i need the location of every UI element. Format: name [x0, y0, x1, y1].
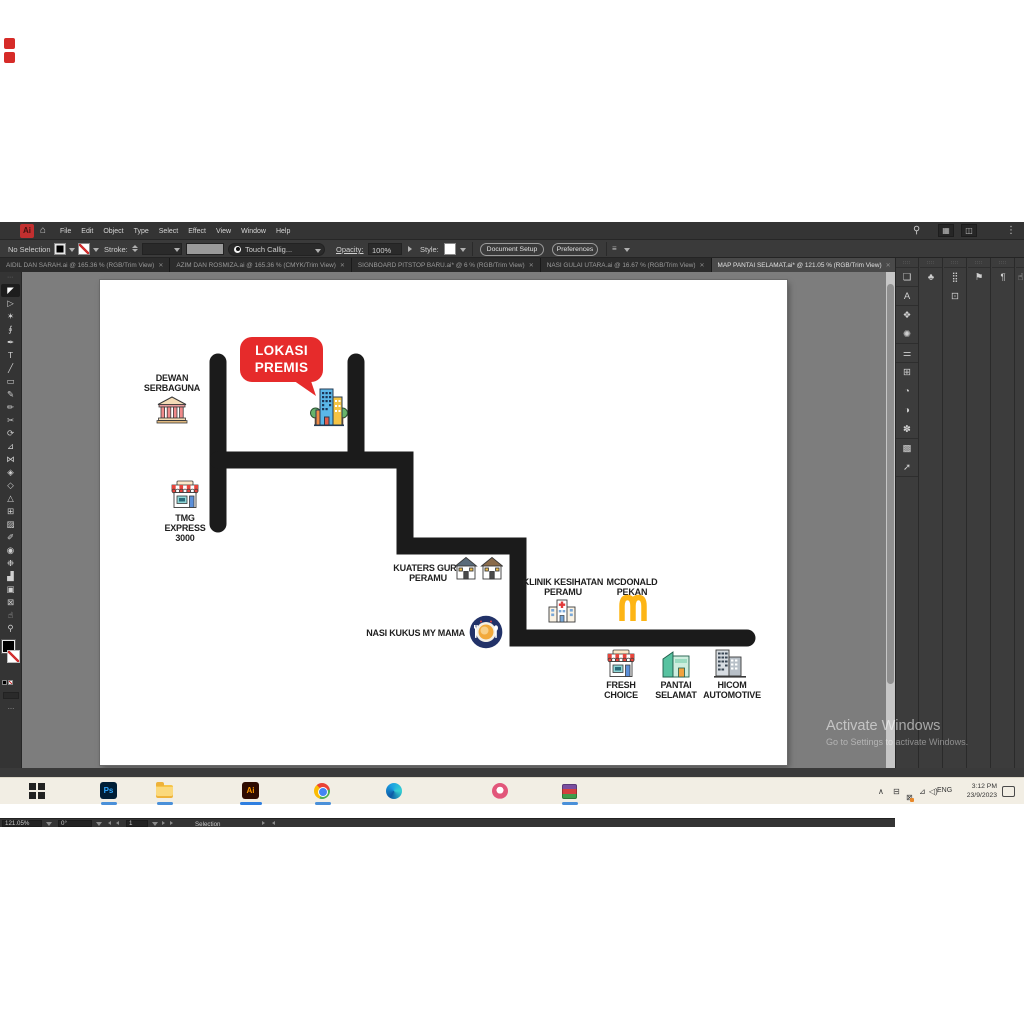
close-tab-icon[interactable]: ✕ — [340, 262, 345, 269]
magic-wand-tool[interactable]: ✶ — [0, 310, 21, 323]
color-mode-icons — [2, 680, 20, 688]
layers-panel-icon[interactable]: ❖ — [896, 306, 918, 325]
type-tool[interactable]: T — [0, 349, 21, 362]
panel-grip[interactable] — [1016, 258, 1024, 268]
illustrator-logo-icon[interactable]: Ai — [20, 224, 34, 238]
taskbar-winrar[interactable] — [562, 782, 580, 800]
photoshop-icon: Ps — [100, 782, 117, 799]
symbols-panel-icon[interactable]: ♣ — [920, 268, 942, 287]
gradient-panel-icon[interactable]: ▩ — [896, 439, 918, 458]
pen-tool[interactable]: ✒ — [0, 336, 21, 349]
brush-definition-dropdown[interactable]: Touch Callig... — [228, 243, 325, 256]
dock-column-2: ∷∷ ♣ — [920, 258, 943, 768]
rotation-dropdown-icon[interactable] — [96, 822, 102, 826]
artboard-tool[interactable]: ▣ — [0, 583, 21, 596]
running-indicator — [157, 802, 173, 805]
windows-taskbar: Ps Ai ∧ ⊟ ⊠ ⊿ ◁) ENG 3:12 PM 23/9/2023 — [0, 777, 1024, 804]
start-button[interactable] — [28, 782, 46, 800]
transform-panel-icon[interactable]: ⣿ — [944, 268, 966, 287]
eyedropper-tool[interactable]: ✐ — [0, 531, 21, 544]
running-indicator — [315, 802, 331, 805]
first-artboard-icon[interactable] — [108, 821, 111, 825]
transparency-panel-icon[interactable]: ◑ — [896, 401, 918, 420]
zoom-dropdown-icon[interactable] — [46, 822, 52, 826]
label-hicom-automotive[interactable]: HICOM AUTOMOTIVE — [700, 680, 764, 700]
label-nasi-kukus[interactable]: NASI KUKUS MY MAMA — [323, 628, 465, 638]
label-dewan-serbaguna[interactable]: DEWAN SERBAGUNA — [132, 373, 212, 393]
artboard-dropdown-icon[interactable] — [152, 822, 158, 826]
status-bar: 121.05% 0° 1 Selection — [0, 818, 895, 827]
stroke-weight-stepper[interactable] — [132, 244, 139, 253]
tab-azim-dan-rosmiza[interactable]: AZIM DAN ROSMIZA.ai @ 165.36 % (CMYK/Tri… — [170, 258, 352, 272]
workspace: ⋯ ◤ ▷ ✶ ∮ ✒ T ╱ ▭ ✎ ✏ ✂ ⟳ ⊿ ⋈ ◈ ◇ △ ⊞ ▨ — [0, 272, 1024, 768]
menu-list: File Edit Object Type Select Effect View… — [58, 222, 292, 240]
tab-title: AZIM DAN ROSMIZA.ai @ 165.36 % (CMYK/Tri… — [176, 262, 336, 269]
dewan-serbaguna-icon[interactable] — [156, 396, 188, 424]
paintbrush-tool[interactable]: ✎ — [0, 388, 21, 401]
gradient-tool[interactable]: ▨ — [0, 518, 21, 531]
hidden-icons-chevron[interactable]: ∧ — [878, 787, 884, 796]
screenshot-page: Ai ⌂ File Edit Object Type Select Effect… — [0, 0, 1024, 1024]
taskbar-photoshop[interactable]: Ps — [100, 782, 118, 800]
time: 3:12 PM — [953, 782, 997, 791]
close-tab-icon[interactable]: ✕ — [529, 262, 534, 269]
pathfinder-panel-icon[interactable]: ⊡ — [944, 287, 966, 306]
hand-tool[interactable]: ☝ — [0, 609, 21, 622]
network-icon[interactable]: ⊿ — [919, 787, 926, 796]
klinik-kesihatan-icon[interactable] — [548, 598, 576, 623]
file-explorer-icon — [156, 785, 173, 798]
drawing-mode-button[interactable] — [3, 692, 19, 699]
label-pantai-selamat[interactable]: PANTAI SELAMAT — [646, 680, 706, 700]
paragraph-panel-icon[interactable]: ¶ — [992, 268, 1014, 287]
hicom-automotive-icon[interactable] — [713, 647, 747, 679]
menu-select[interactable]: Select — [157, 228, 180, 235]
status-collapse-icon[interactable] — [272, 821, 275, 825]
road-staircase — [218, 460, 747, 638]
tab-title: NASI GULAI UTARA.ai @ 16.67 % (RGB/Trim … — [547, 262, 696, 269]
quick-actions-panel-icon[interactable]: ☝ — [1016, 268, 1024, 287]
document-tab-bar: AIDIL DAN SARAH.ai @ 165.36 % (RGB/Trim … — [0, 258, 897, 272]
taskbar-illustrator[interactable]: Ai — [242, 782, 260, 800]
activate-windows-watermark: Activate Windows Go to Settings to activ… — [826, 718, 1016, 747]
watermark-subtitle: Go to Settings to activate Windows. — [826, 737, 1016, 747]
stroke-label: Stroke: — [104, 245, 128, 254]
arrange-documents-icon[interactable]: ◫ — [961, 224, 977, 237]
opacity-link[interactable]: Opacity: — [336, 245, 364, 254]
free-transform-tool[interactable]: ◈ — [0, 466, 21, 479]
panel-grip[interactable]: ∷∷ — [992, 258, 1014, 268]
panel-grip[interactable]: ∷∷ — [920, 258, 942, 268]
color-icon[interactable] — [2, 680, 7, 685]
lokasi-premis-callout[interactable]: LOKASI PREMIS — [240, 337, 323, 382]
panel-grip[interactable]: ∷∷ — [944, 258, 966, 268]
pantai-selamat-icon[interactable] — [661, 649, 691, 679]
tab-title: SIGNBOARD PITSTOP BARU.ai* @ 6 % (RGB/Tr… — [358, 262, 525, 269]
brush-name: Touch Callig... — [245, 245, 292, 254]
menu-edit[interactable]: Edit — [79, 228, 95, 235]
next-artboard-icon[interactable] — [162, 821, 165, 825]
artboard[interactable]: LOKASI PREMIS — [100, 280, 787, 765]
zoom-level-field[interactable]: 121.05% — [2, 820, 42, 827]
label-tmg-express[interactable]: TMG EXPRESS 3000 — [145, 513, 225, 543]
kuaters-guru-icon[interactable] — [455, 556, 503, 582]
dock-column-4: ∷∷ ⚑ — [968, 258, 991, 768]
column-graph-tool[interactable]: ▟ — [0, 570, 21, 583]
taskbar-design-app[interactable] — [492, 782, 510, 800]
illustrator-window: Ai ⌂ File Edit Object Type Select Effect… — [0, 222, 1024, 777]
fill-color-swatch[interactable] — [54, 243, 66, 255]
selection-tool[interactable]: ◤ — [1, 284, 20, 297]
close-tab-icon[interactable]: ✕ — [700, 262, 705, 269]
rotate-tool[interactable]: ⟳ — [0, 427, 21, 440]
properties-panel-icon[interactable]: ⚌ — [896, 344, 918, 363]
tray-app-icon[interactable]: ⊟ — [893, 787, 900, 796]
pencil-tool[interactable]: ✏ — [0, 401, 21, 414]
blend-tool[interactable]: ◉ — [0, 544, 21, 557]
canvas-pasteboard[interactable]: LOKASI PREMIS — [22, 272, 886, 768]
color-panel-icon[interactable]: ✺ — [896, 325, 918, 344]
dock-column-3: ∷∷ ⣿ ⊡ — [944, 258, 967, 768]
menu-type[interactable]: Type — [132, 228, 151, 235]
style-label: Style: — [420, 245, 439, 254]
stroke-color-swatch[interactable] — [78, 243, 90, 255]
tab-title: MAP PANTAI SELAMAT.ai* @ 121.05 % (RGB/T… — [718, 262, 882, 269]
artifact-red-mark — [4, 38, 15, 49]
workspace-switcher-icon[interactable]: ▦ — [938, 224, 954, 237]
export-panel-icon[interactable]: ➚ — [896, 458, 918, 477]
direct-selection-tool[interactable]: ▷ — [0, 297, 21, 310]
menu-view[interactable]: View — [214, 228, 233, 235]
selection-status-label: No Selection — [8, 245, 51, 254]
align-dropdown-icon[interactable] — [624, 248, 630, 252]
brush-preview-icon — [234, 246, 241, 253]
vertical-scrollbar[interactable] — [886, 272, 895, 768]
taskbar-edge[interactable] — [386, 782, 404, 800]
line-segment-tool[interactable]: ╱ — [0, 362, 21, 375]
artboard-number-field[interactable]: 1 — [126, 820, 148, 827]
perspective-grid-tool[interactable]: △ — [0, 492, 21, 505]
menu-bar: Ai ⌂ File Edit Object Type Select Effect… — [0, 222, 1024, 240]
tmg-express-icon[interactable] — [170, 480, 200, 510]
close-tab-icon[interactable]: ✕ — [158, 262, 163, 269]
dock-column-1: ∷∷ ❏ A ❖ ✺ ⚌ ⊞ ◔ ◑ ✽ ▩ ➚ — [896, 258, 919, 768]
style-swatch[interactable] — [444, 243, 456, 255]
shape-builder-tool[interactable]: ◇ — [0, 479, 21, 492]
windows-logo-icon — [28, 782, 46, 800]
last-artboard-icon[interactable] — [170, 821, 173, 825]
menu-object[interactable]: Object — [101, 228, 125, 235]
chrome-icon — [314, 783, 330, 799]
tab-nasi-gulai-utara[interactable]: NASI GULAI UTARA.ai @ 16.67 % (RGB/Trim … — [541, 258, 712, 272]
tab-title: AIDIL DAN SARAH.ai @ 165.36 % (RGB/Trim … — [6, 262, 154, 269]
pattern-panel-icon[interactable]: ✽ — [896, 420, 918, 439]
slice-tool[interactable]: ⊠ — [0, 596, 21, 609]
callout-line1: LOKASI — [240, 342, 323, 359]
nasi-kukus-icon[interactable] — [469, 615, 503, 649]
opacity-expand-icon[interactable] — [408, 246, 412, 252]
date: 23/9/2023 — [953, 791, 997, 800]
divider — [606, 242, 607, 256]
taskbar-file-explorer[interactable] — [156, 782, 174, 800]
edge-icon — [386, 783, 402, 799]
menu-effect[interactable]: Effect — [186, 228, 208, 235]
style-dropdown-icon[interactable] — [460, 248, 466, 252]
tab-map-pantai-selamat[interactable]: MAP PANTAI SELAMAT.ai* @ 121.05 % (RGB/T… — [712, 258, 898, 272]
panel-grip[interactable]: ∷∷ — [968, 258, 990, 268]
rotation-field[interactable]: 0° — [58, 820, 92, 827]
none-icon[interactable] — [8, 680, 13, 685]
previous-artboard-icon[interactable] — [116, 821, 119, 825]
taskbar-chrome[interactable] — [314, 782, 332, 800]
dock-column-5: ∷∷ ¶ — [992, 258, 1015, 768]
status-hint: Selection — [195, 821, 220, 828]
fill-stroke-swatches — [0, 638, 22, 678]
brush-dropdown-icon — [315, 249, 321, 253]
align-options-icon[interactable]: ≡ — [612, 244, 617, 253]
fill-dropdown-icon[interactable] — [69, 248, 75, 252]
menu-file[interactable]: File — [58, 228, 73, 235]
clock[interactable]: 3:12 PM 23/9/2023 — [953, 782, 997, 800]
panel-dock: ∷∷ ❏ A ❖ ✺ ⚌ ⊞ ◔ ◑ ✽ ▩ ➚ ∷∷ ♣ — [895, 258, 1024, 768]
mcdonald-arches-icon[interactable] — [618, 594, 648, 622]
width-profile-field[interactable] — [186, 243, 224, 255]
libraries-panel-icon[interactable]: ⊞ — [896, 363, 918, 382]
menu-help[interactable]: Help — [274, 228, 292, 235]
width-tool[interactable]: ⋈ — [0, 453, 21, 466]
panel-grip[interactable]: ∷∷ — [896, 258, 918, 268]
symbol-sprayer-tool[interactable]: ❉ — [0, 557, 21, 570]
search-icon[interactable]: ⚲ — [913, 224, 920, 238]
running-indicator — [101, 802, 117, 805]
active-app-indicator — [240, 802, 262, 805]
menu-window[interactable]: Window — [239, 228, 268, 235]
zoom-tool[interactable]: ⚲ — [0, 622, 21, 635]
stroke-swatch[interactable] — [7, 650, 20, 663]
stroke-panel-icon[interactable]: ⚑ — [968, 268, 990, 287]
design-app-icon — [492, 783, 508, 799]
character-panel-icon[interactable]: A — [896, 287, 918, 306]
fresh-choice-icon[interactable] — [606, 649, 636, 679]
tray-app-icon[interactable]: ⊠ — [906, 793, 913, 802]
tab-signboard-pitstop[interactable]: SIGNBOARD PITSTOP BARU.ai* @ 6 % (RGB/Tr… — [352, 258, 541, 272]
callout-line2: PREMIS — [240, 359, 323, 376]
status-expand-icon[interactable] — [262, 821, 265, 825]
tools-panel: ⋯ ◤ ▷ ✶ ∮ ✒ T ╱ ▭ ✎ ✏ ✂ ⟳ ⊿ ⋈ ◈ ◇ △ ⊞ ▨ — [0, 272, 22, 768]
winrar-icon — [562, 784, 577, 799]
stroke-dropdown-icon[interactable] — [93, 248, 99, 252]
control-options-bar: No Selection Stroke: Touch Callig... Opa… — [0, 240, 1024, 258]
divider — [472, 242, 473, 256]
lasso-tool[interactable]: ∮ — [0, 323, 21, 336]
more-options-icon[interactable]: ⋮ — [1006, 224, 1016, 238]
tools-panel-grip[interactable]: ⋯ — [0, 272, 21, 284]
document-setup-button[interactable]: Document Setup — [480, 243, 544, 256]
running-indicator — [562, 802, 578, 805]
dock-column-6: ☝ — [1016, 258, 1024, 768]
scrollbar-thumb[interactable] — [887, 284, 894, 684]
close-tab-icon[interactable]: ✕ — [886, 262, 891, 269]
language-indicator[interactable]: ENG — [937, 787, 952, 794]
preferences-button[interactable]: Preferences — [552, 243, 598, 256]
mesh-tool[interactable]: ⊞ — [0, 505, 21, 518]
edit-toolbar-icon[interactable]: … — [0, 704, 22, 711]
artifact-red-mark — [4, 52, 15, 63]
illustrator-icon: Ai — [242, 782, 259, 799]
home-icon[interactable]: ⌂ — [40, 224, 46, 238]
scale-tool[interactable]: ⊿ — [0, 440, 21, 453]
opacity-field[interactable]: 100% — [368, 243, 402, 255]
stroke-weight-dropdown-icon[interactable] — [174, 248, 180, 252]
label-fresh-choice[interactable]: FRESH CHOICE — [591, 680, 651, 700]
artboards-panel-icon[interactable]: ❏ — [896, 268, 918, 287]
tab-aidil-dan-sarah[interactable]: AIDIL DAN SARAH.ai @ 165.36 % (RGB/Trim … — [0, 258, 170, 272]
watermark-title: Activate Windows — [826, 718, 1016, 734]
scissors-tool[interactable]: ✂ — [0, 414, 21, 427]
action-center-icon[interactable] — [1002, 786, 1015, 797]
rectangle-tool[interactable]: ▭ — [0, 375, 21, 388]
appearance-panel-icon[interactable]: ◔ — [896, 382, 918, 401]
